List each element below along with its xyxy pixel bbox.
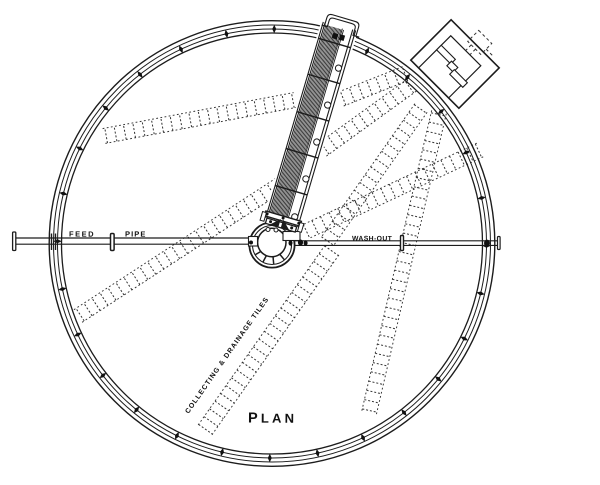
svg-text:PIPE: PIPE [125,230,147,239]
svg-text:WASH-OUT: WASH-OUT [352,236,393,243]
svg-text:PLAN: PLAN [248,411,297,427]
svg-text:FEED: FEED [69,230,95,239]
